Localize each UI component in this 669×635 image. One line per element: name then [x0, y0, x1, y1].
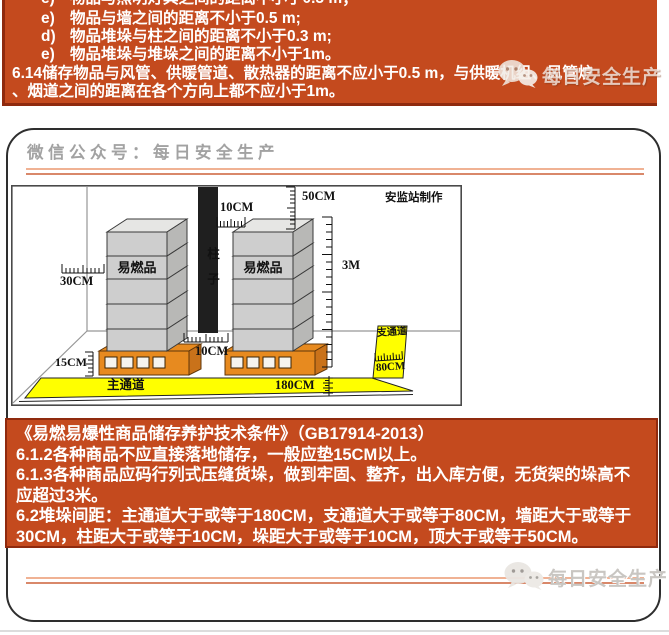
divider-double-line-bottom	[26, 577, 644, 584]
clipped-regulation-line: e) 物品与照明灯具之间的距离不小于0.5 m；	[5, 0, 657, 10]
wechat-account-header: 微信公众号：每日安全生产	[27, 139, 279, 163]
paragraph-line: 6.14储存物品与风管、供暖管道、散热器的距离不应小于0.5 m，与供暖机组、风…	[12, 65, 651, 83]
stacking-diagram-drawing	[11, 185, 462, 406]
item-marker: e)	[41, 46, 70, 64]
standard-text-line: 30CM，柱距大于或等于10CM，垛距大于或等于10CM，顶大于或等于50CM。	[16, 527, 647, 548]
column-gap-label: 10CM	[220, 201, 253, 214]
top-regulation-banner: e) 物品与照明灯具之间的距离不小于0.5 m； e) 物品与墙之间的距离不小于…	[2, 0, 657, 106]
standard-text-line: 应超过3米。	[16, 486, 647, 507]
main-aisle-label: 主通道	[107, 379, 145, 392]
goods-label-right: 易燃品	[234, 261, 292, 274]
bottom-separator-line	[0, 630, 669, 632]
article-image: e) 物品与照明灯具之间的距离不小于0.5 m； e) 物品与墙之间的距离不小于…	[0, 0, 669, 635]
divider-double-line-top	[26, 168, 644, 175]
main-aisle-width-label: 180CM	[275, 379, 315, 392]
stack-height-label: 3M	[342, 259, 360, 272]
branch-aisle-label: 支通道	[377, 327, 408, 339]
item-marker: e)	[41, 10, 70, 28]
stacking-diagram: 30CM 10CM 50CM 3M 15CM 10CM 主通道 180CM 支通…	[11, 185, 462, 406]
diagram-credit-label: 安监站制作	[385, 193, 443, 205]
ceiling-gap-label: 50CM	[302, 190, 335, 203]
wall-gap-label: 30CM	[60, 275, 93, 288]
regulation-item: e) 物品堆垛与堆垛之间的距离不小于1m。	[5, 46, 657, 64]
paragraph-line: 、烟道之间的距离在各个方向上都不应小于1m。	[12, 83, 651, 101]
standard-text-line: 6.1.2各种商品不应直接落地储存，一般应垫15CM以上。	[16, 445, 647, 466]
goods-label-left: 易燃品	[108, 261, 166, 274]
column-pillar-label: 柱子	[198, 215, 218, 330]
regulation-item: e) 物品与墙之间的距离不小于0.5 m;	[5, 10, 657, 28]
item-text: 物品堆垛与堆垛之间的距离不小于1m。	[70, 46, 340, 64]
bottom-standard-banner: 《易燃易爆性商品储存养护技术条件》（GB17914-2013） 6.1.2各种商…	[5, 418, 658, 548]
goods-stack-left	[107, 219, 187, 351]
item-marker: d)	[41, 28, 70, 46]
pallet-height-label: 15CM	[55, 356, 87, 368]
branch-aisle-width-label: 80CM	[376, 361, 406, 374]
item-text: 物品与照明灯具之间的距离不小于0.5 m；	[70, 0, 358, 8]
regulation-item: d) 物品堆垛与柱之间的距离不小于0.3 m;	[5, 28, 657, 46]
standard-text-line: 6.1.3各种商品应码行列式压缝货垛，做到牢固、整齐，出入库方便，无货架的垛高不	[16, 465, 647, 486]
item-text: 物品堆垛与柱之间的距离不小于0.3 m;	[70, 28, 332, 46]
standard-text-line: 6.2堆垛间距：主通道大于或等于180CM，支通道大于或等于80CM，墙距大于或…	[16, 506, 647, 527]
item-marker: e)	[41, 0, 70, 8]
item-text: 物品与墙之间的距离不小于0.5 m;	[70, 10, 301, 28]
goods-stack-right	[233, 219, 313, 351]
stack-gap-label: 10CM	[195, 345, 228, 358]
standard-title-line: 《易燃易爆性商品储存养护技术条件》（GB17914-2013）	[16, 424, 647, 445]
regulation-paragraph: 6.14储存物品与风管、供暖管道、散热器的距离不应小于0.5 m，与供暖机组、风…	[5, 64, 657, 101]
